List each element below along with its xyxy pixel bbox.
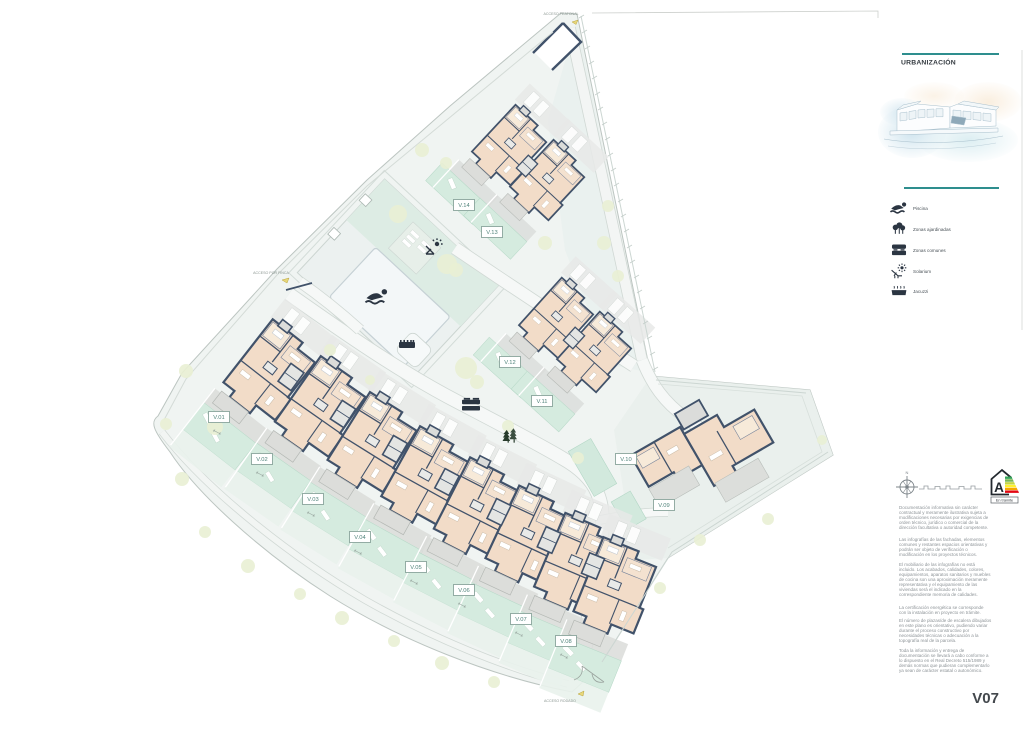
svg-text:V.12: V.12	[504, 360, 515, 366]
svg-text:topografía real de la parcela.: topografía real de la parcela.	[899, 638, 956, 643]
svg-text:modificación en los proyectos: modificación en los proyectos técnicos.	[899, 552, 977, 557]
svg-text:V.06: V.06	[458, 588, 469, 594]
svg-text:A: A	[994, 480, 1004, 495]
svg-text:Zonas comunes: Zonas comunes	[913, 248, 946, 253]
svg-text:V.11: V.11	[537, 399, 548, 405]
svg-text:V.01: V.01	[213, 415, 224, 421]
svg-text:En trámite: En trámite	[996, 499, 1013, 503]
svg-text:V.03: V.03	[307, 497, 318, 503]
svg-text:V.14: V.14	[458, 203, 470, 209]
svg-text:V.08: V.08	[560, 639, 571, 645]
svg-text:V07: V07	[972, 690, 999, 707]
svg-text:Solarium: Solarium	[913, 269, 931, 274]
svg-text:URBANIZACIÓN: URBANIZACIÓN	[901, 58, 956, 67]
svg-text:correspondiente memoria de cal: correspondiente memoria de calidades.	[899, 592, 978, 597]
svg-text:V.09: V.09	[658, 503, 669, 509]
svg-text:V.05: V.05	[410, 565, 421, 571]
svg-text:V.02: V.02	[256, 457, 267, 463]
svg-text:Piscina: Piscina	[913, 206, 928, 211]
svg-text:ACCESO PEATONAL: ACCESO PEATONAL	[543, 12, 578, 16]
svg-text:dirección facultativa o autori: dirección facultativa o autoridad compet…	[899, 525, 988, 530]
svg-text:Jacuzzi: Jacuzzi	[913, 289, 928, 294]
svg-text:N: N	[906, 470, 909, 475]
svg-text:ya sean de carácter estatal o: ya sean de carácter estatal o autonómico…	[899, 668, 983, 673]
svg-text:V.10: V.10	[620, 457, 631, 463]
svg-text:Zonas ajardinadas: Zonas ajardinadas	[913, 227, 951, 232]
svg-text:V.04: V.04	[354, 535, 366, 541]
svg-text:V.13: V.13	[486, 230, 497, 236]
svg-text:ACCESO POR FINCA: ACCESO POR FINCA	[253, 271, 289, 275]
svg-text:con la instalación en proyecto: con la instalación en proyecto en trámit…	[899, 610, 981, 615]
svg-text:ACCESO RODADO: ACCESO RODADO	[544, 699, 576, 703]
svg-text:V.07: V.07	[515, 617, 526, 623]
